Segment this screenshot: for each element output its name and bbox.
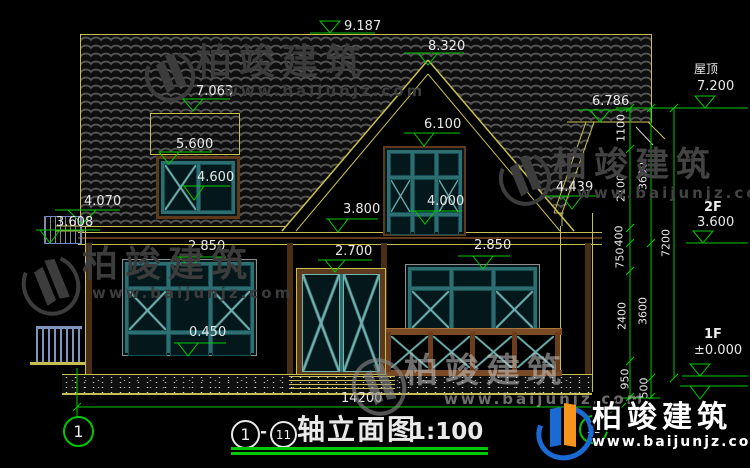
- window-right: [405, 264, 540, 332]
- brand-building-blue: [550, 407, 561, 447]
- level-gable-window-sill: 4.000: [427, 195, 464, 208]
- level-ridge: 9.187: [344, 20, 381, 33]
- grade-roof-value: 7.200: [697, 80, 734, 93]
- axis-bubble-1: 1: [63, 416, 94, 447]
- title-underline-1: [231, 447, 488, 450]
- grade-f2-value: 3.600: [697, 216, 734, 229]
- brand-logo: [536, 400, 590, 458]
- gable-window: [383, 146, 466, 236]
- grade-roof-label: 屋顶: [694, 63, 718, 76]
- dim-400: 400: [614, 226, 625, 247]
- dim-950: 950: [620, 369, 631, 390]
- level-right-barge: 4.439: [556, 181, 593, 194]
- elevation-drawing: 9.187 8.320 7.063 5.600 4.600 4.070 3.60…: [0, 0, 750, 468]
- grade-f1-label: 1F: [704, 328, 722, 341]
- wall-right-edge: [592, 213, 593, 392]
- drawing-title: 轴立面图: [297, 415, 417, 445]
- window-left: [122, 259, 257, 356]
- level-window-left-top: 2.850: [188, 240, 225, 253]
- drawing-scale: 1:100: [410, 420, 483, 444]
- level-floor2: 3.800: [343, 203, 380, 216]
- level-dormer-win-top: 5.600: [176, 138, 213, 151]
- level-right-eave: 6.786: [592, 95, 629, 108]
- dim-2100: 2100: [616, 174, 627, 202]
- level-window-right-top: 2.850: [474, 239, 511, 252]
- title-axis-start: 1: [231, 420, 260, 449]
- brand-url: www.baijunjz.com: [592, 434, 750, 450]
- title-underline-2: [231, 452, 488, 455]
- brand-text: 柏竣建筑 www.baijunjz.com: [592, 402, 750, 450]
- grade-f2-label: 2F: [704, 201, 722, 214]
- title-dash: -: [260, 426, 267, 439]
- dim-3600-lower: 3600: [638, 297, 649, 325]
- level-dormer-top: 7.063: [196, 85, 233, 98]
- dormer-pane-left: [164, 164, 197, 211]
- level-gable-window-top: 6.100: [424, 118, 461, 131]
- dormer-window: [156, 156, 240, 219]
- dim-2400: 2400: [617, 302, 628, 330]
- side-ledge: [30, 362, 86, 365]
- brand-building-orange: [564, 403, 576, 447]
- dim-7200: 7200: [661, 229, 672, 257]
- title-axis-end: 11: [270, 421, 297, 448]
- dim-3600-upper: 3600: [638, 162, 649, 190]
- porch-railing: [386, 328, 562, 376]
- grade-f1-value: ±0.000: [694, 344, 742, 357]
- level-left-ledge: 3.608: [56, 216, 93, 229]
- level-window-left-sill: 0.450: [189, 326, 226, 339]
- pilaster: [585, 243, 591, 374]
- brand-name: 柏竣建筑: [592, 402, 750, 434]
- level-left-eave: 4.070: [84, 195, 121, 208]
- dim-500: 500: [639, 378, 650, 399]
- pilaster: [287, 243, 293, 374]
- door-leaf-left: [302, 274, 340, 372]
- level-door-top: 2.700: [335, 245, 372, 258]
- dim-750: 750: [615, 248, 626, 269]
- level-gable-peak: 8.320: [428, 40, 465, 53]
- side-railing: [36, 326, 82, 365]
- level-dormer-sill: 4.600: [197, 171, 234, 184]
- dim-1100: 1100: [616, 114, 627, 142]
- watermark-logo-left: [12, 245, 89, 324]
- pilaster: [86, 243, 92, 374]
